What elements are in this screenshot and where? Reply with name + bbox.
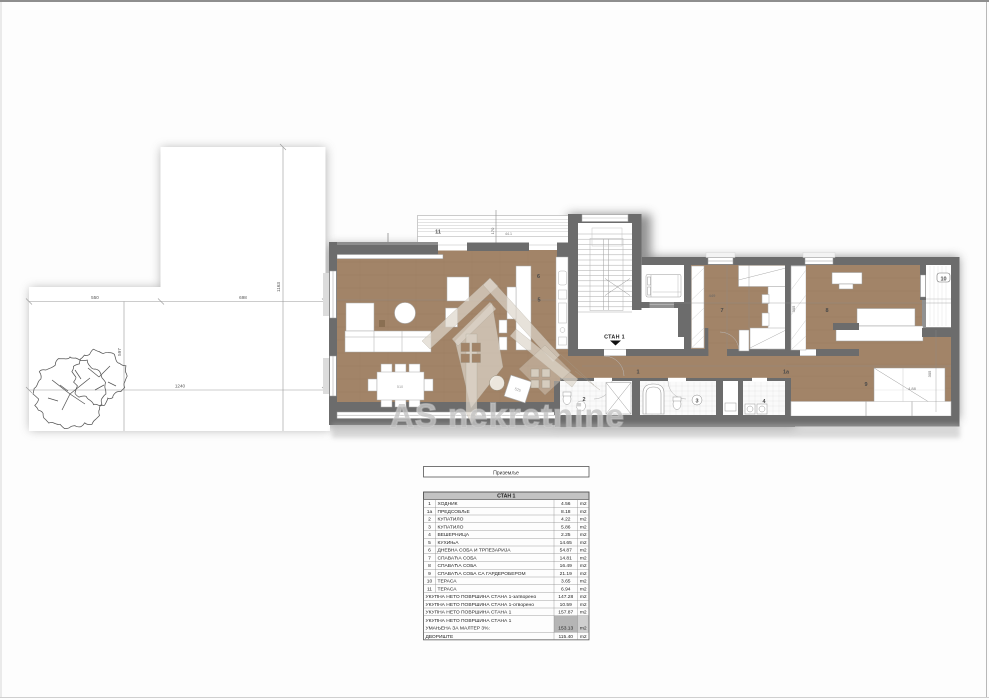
svg-text:m2: m2 xyxy=(580,610,587,616)
svg-text:153.13: 153.13 xyxy=(558,625,573,631)
svg-text:8.18: 8.18 xyxy=(561,509,571,515)
svg-text:4: 4 xyxy=(428,532,431,538)
svg-text:m2: m2 xyxy=(580,563,587,569)
svg-text:597: 597 xyxy=(117,348,122,356)
svg-text:2.25: 2.25 xyxy=(561,532,571,538)
svg-text:УКУПНА НЕТО ПОВРШИНА СТАНА 1-з: УКУПНА НЕТО ПОВРШИНА СТАНА 1-затворено xyxy=(426,594,537,600)
svg-text:m2: m2 xyxy=(580,625,587,631)
svg-text:УМАЊЕНА ЗА МАЛТЕР 3%:: УМАЊЕНА ЗА МАЛТЕР 3%: xyxy=(426,625,490,631)
svg-text:m2: m2 xyxy=(580,509,587,515)
svg-text:5: 5 xyxy=(428,540,431,546)
svg-text:6: 6 xyxy=(537,274,540,280)
svg-text:ТЕРАСА: ТЕРАСА xyxy=(438,579,458,585)
svg-text:8: 8 xyxy=(428,563,431,569)
svg-text:4.56: 4.56 xyxy=(561,501,571,507)
svg-text:1a: 1a xyxy=(427,509,433,515)
svg-text:305: 305 xyxy=(791,305,796,312)
svg-text:16.49: 16.49 xyxy=(560,563,573,569)
svg-text:5: 5 xyxy=(537,298,540,304)
svg-text:3.65: 3.65 xyxy=(561,579,571,585)
svg-text:9: 9 xyxy=(428,571,431,577)
svg-text:4.22: 4.22 xyxy=(561,517,571,523)
svg-text:9: 9 xyxy=(864,382,867,388)
svg-text:m2: m2 xyxy=(580,594,587,600)
svg-text:21.19: 21.19 xyxy=(560,571,573,577)
svg-text:СПАВАЋА СОБА: СПАВАЋА СОБА xyxy=(438,555,478,561)
svg-text:8: 8 xyxy=(825,308,828,314)
svg-text:7: 7 xyxy=(720,308,723,314)
svg-text:14.81: 14.81 xyxy=(560,555,573,561)
svg-text:5.86: 5.86 xyxy=(561,524,571,530)
svg-text:1240: 1240 xyxy=(175,384,186,389)
svg-text:11: 11 xyxy=(427,586,432,592)
svg-text:3: 3 xyxy=(695,399,698,405)
svg-text:54.87: 54.87 xyxy=(560,548,573,554)
svg-text:1a: 1a xyxy=(783,370,790,376)
svg-text:ДНЕВНА СОБА И ТРПЕЗАРИЈА: ДНЕВНА СОБА И ТРПЕЗАРИЈА xyxy=(438,548,512,554)
svg-text:147.28: 147.28 xyxy=(558,594,573,600)
svg-text:m2: m2 xyxy=(580,548,587,554)
svg-text:115.40: 115.40 xyxy=(558,634,573,640)
svg-text:698: 698 xyxy=(239,295,247,300)
svg-text:СТАН 1: СТАН 1 xyxy=(604,335,625,341)
svg-text:m2: m2 xyxy=(580,634,587,640)
svg-text:10: 10 xyxy=(940,277,946,283)
svg-text:6.94: 6.94 xyxy=(561,586,571,592)
svg-text:ХОДНИК: ХОДНИК xyxy=(438,501,458,507)
svg-text:КУХИЊА: КУХИЊА xyxy=(438,540,460,546)
svg-text:УКУПНА НЕТО ПОВРШИНА СТАНА 1-о: УКУПНА НЕТО ПОВРШИНА СТАНА 1-отворено xyxy=(426,602,535,608)
svg-text:157.87: 157.87 xyxy=(558,610,573,616)
svg-text:m2: m2 xyxy=(580,602,587,608)
svg-text:m2: m2 xyxy=(580,540,587,546)
svg-text:m2: m2 xyxy=(580,501,587,507)
svg-text:m2: m2 xyxy=(580,555,587,561)
svg-text:СПАВАЋА СОБА: СПАВАЋА СОБА xyxy=(438,563,478,569)
svg-text:7: 7 xyxy=(428,555,431,561)
svg-text:1: 1 xyxy=(428,501,431,507)
svg-text:6: 6 xyxy=(428,548,431,554)
svg-text:44.1: 44.1 xyxy=(505,232,512,236)
svg-text:10: 10 xyxy=(427,579,433,585)
svg-text:305: 305 xyxy=(927,370,932,377)
svg-text:1: 1 xyxy=(636,370,639,376)
svg-text:3: 3 xyxy=(428,524,431,530)
svg-text:170: 170 xyxy=(490,227,495,234)
svg-text:m2: m2 xyxy=(580,532,587,538)
svg-text:ВЕШЕРНИЦА: ВЕШЕРНИЦА xyxy=(438,532,470,538)
svg-text:m2: m2 xyxy=(580,579,587,585)
svg-text:КУПАТИЛО: КУПАТИЛО xyxy=(438,517,464,523)
svg-text:ДВОРИШТЕ: ДВОРИШТЕ xyxy=(426,634,454,640)
svg-text:m2: m2 xyxy=(580,517,587,523)
svg-text:2: 2 xyxy=(428,517,431,523)
svg-text:550: 550 xyxy=(91,295,99,300)
svg-text:m2: m2 xyxy=(580,524,587,530)
svg-text:m2: m2 xyxy=(580,586,587,592)
svg-text:ПРЕДСОБЉЕ: ПРЕДСОБЉЕ xyxy=(438,509,471,515)
svg-text:СПАВАЋА СОБА СА ГАРДЕРОБЕРОМ: СПАВАЋА СОБА СА ГАРДЕРОБЕРОМ xyxy=(438,571,526,577)
svg-text:УКУПНА НЕТО ПОВРШИНА СТАНА 1: УКУПНА НЕТО ПОВРШИНА СТАНА 1 xyxy=(426,610,512,616)
svg-text:ТЕРАСА: ТЕРАСА xyxy=(438,586,458,592)
svg-text:449: 449 xyxy=(709,293,716,298)
svg-text:УКУПНА НЕТО ПОВРШИНА СТАНА 1: УКУПНА НЕТО ПОВРШИНА СТАНА 1 xyxy=(426,618,512,624)
svg-text:11: 11 xyxy=(435,230,441,236)
svg-text:m2: m2 xyxy=(580,571,587,577)
svg-text:СТАН 1: СТАН 1 xyxy=(497,494,515,500)
svg-text:Приземље: Приземље xyxy=(493,470,519,476)
svg-text:10.59: 10.59 xyxy=(560,602,573,608)
svg-text:4.88: 4.88 xyxy=(908,386,917,391)
svg-text:510: 510 xyxy=(397,385,403,389)
svg-text:КУПАТИЛО: КУПАТИЛО xyxy=(438,524,464,530)
svg-text:14.65: 14.65 xyxy=(560,540,573,546)
svg-text:1163: 1163 xyxy=(276,282,281,292)
